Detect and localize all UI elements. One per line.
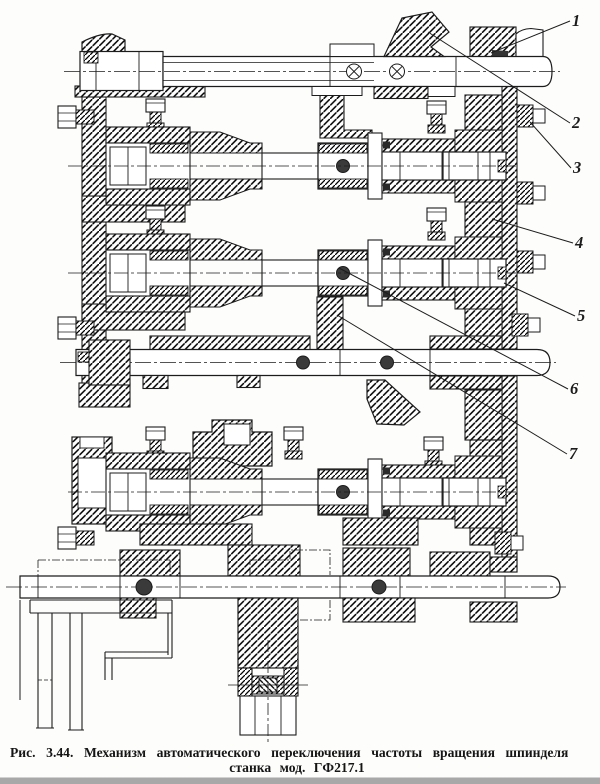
svg-text:станка мод. ГФ217.1: станка мод. ГФ217.1: [229, 760, 365, 775]
svg-text:2: 2: [571, 113, 580, 132]
svg-text:5: 5: [577, 306, 585, 325]
svg-text:Рис. 3.44. Механизм автоматиче: Рис. 3.44. Механизм автоматического пере…: [10, 745, 568, 760]
svg-text:3: 3: [572, 158, 581, 177]
svg-text:7: 7: [569, 444, 578, 463]
svg-text:4: 4: [574, 233, 583, 252]
svg-text:1: 1: [572, 11, 580, 30]
svg-text:6: 6: [570, 379, 579, 398]
